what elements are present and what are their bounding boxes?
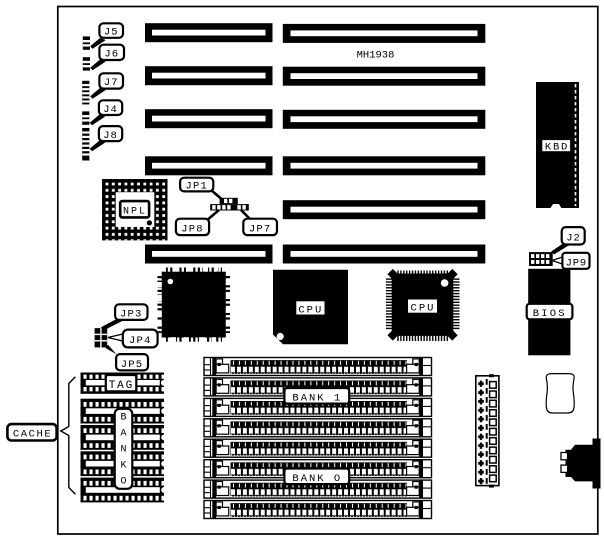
svg-text:NPL: NPL <box>123 206 147 217</box>
svg-text:N: N <box>120 445 126 456</box>
svg-text:BIOS: BIOS <box>533 308 567 320</box>
svg-text:TAG: TAG <box>109 380 134 392</box>
svg-text:J8: J8 <box>103 130 118 142</box>
svg-text:JP9: JP9 <box>566 257 587 269</box>
svg-text:B: B <box>120 413 126 424</box>
svg-text:J6: J6 <box>104 48 119 60</box>
svg-text:A: A <box>120 429 126 440</box>
svg-text:JP7: JP7 <box>249 223 272 235</box>
svg-text:CPU: CPU <box>411 303 436 315</box>
svg-text:CACHE: CACHE <box>13 429 53 441</box>
svg-text:BANK O: BANK O <box>292 473 342 485</box>
svg-text:KBD: KBD <box>545 142 569 154</box>
svg-text:J5: J5 <box>104 27 119 39</box>
svg-text:JP1: JP1 <box>185 181 208 193</box>
svg-text:MH1938: MH1938 <box>357 49 395 61</box>
svg-text:CPU: CPU <box>298 304 323 316</box>
svg-text:J4: J4 <box>103 104 118 116</box>
svg-text:O: O <box>120 477 126 488</box>
svg-text:JP5: JP5 <box>121 359 144 371</box>
svg-text:K: K <box>120 461 126 472</box>
svg-text:JP4: JP4 <box>129 335 152 347</box>
svg-text:BANK 1: BANK 1 <box>292 392 342 404</box>
svg-text:JP8: JP8 <box>181 223 204 235</box>
svg-text:JP3: JP3 <box>120 309 143 321</box>
svg-text:J7: J7 <box>104 77 119 89</box>
svg-text:J2: J2 <box>566 233 581 245</box>
